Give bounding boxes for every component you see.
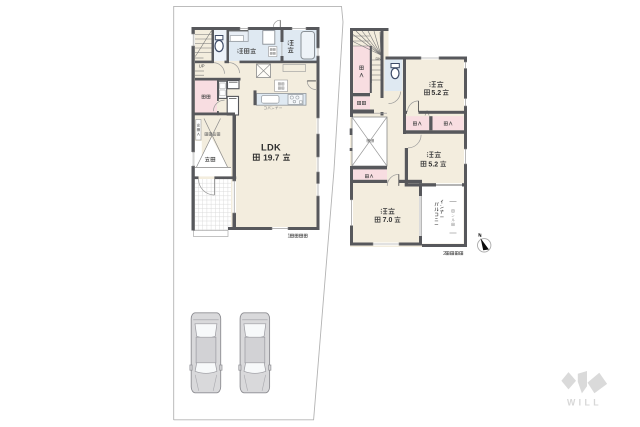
svg-text:5.2: 5.2: [431, 90, 441, 97]
svg-text:5.2: 5.2: [428, 161, 438, 168]
svg-text:UP: UP: [199, 63, 205, 68]
svg-text:7.0: 7.0: [383, 217, 393, 224]
svg-text:1: 1: [288, 233, 291, 239]
svg-text:DN: DN: [375, 56, 381, 61]
svg-text:2: 2: [443, 251, 446, 257]
svg-text:LDK: LDK: [261, 143, 281, 153]
svg-text:19.7: 19.7: [263, 152, 280, 162]
svg-text:WILL: WILL: [567, 398, 602, 408]
